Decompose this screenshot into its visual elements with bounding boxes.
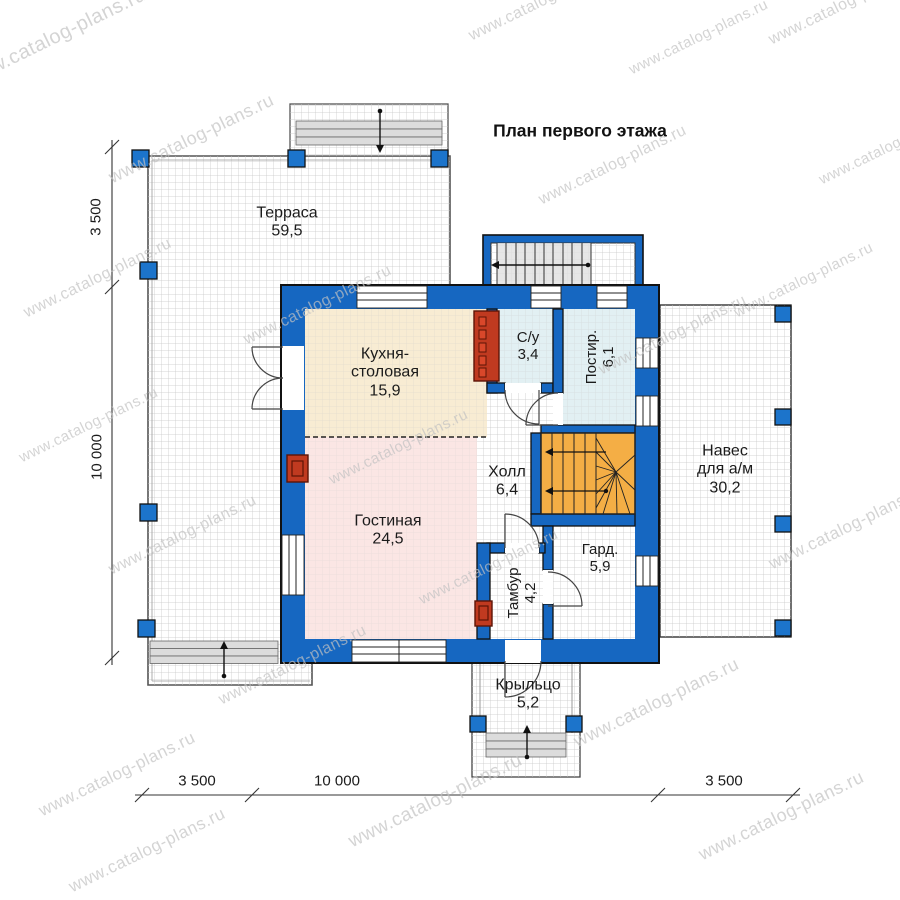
room-label-hall: Холл 6,4 (488, 464, 526, 501)
window (636, 556, 658, 586)
room-name: Кухня-столовая (337, 345, 433, 382)
plan-title: План первого этажа (493, 121, 667, 142)
room-name: Гостиная (354, 513, 421, 531)
dim-left-10000: 10 000 (89, 434, 106, 480)
room-label-terrace: Терраса 59,5 (256, 205, 317, 242)
room-name: С/у (517, 329, 540, 346)
room-label-living: Гостиная 24,5 (354, 513, 421, 550)
window (597, 286, 627, 308)
window (636, 338, 658, 368)
room-name: Холл (488, 464, 526, 482)
window (636, 396, 658, 426)
room-area: 6,4 (488, 482, 526, 500)
room-area: 24,5 (354, 531, 421, 549)
floor-plan-drawing (0, 0, 900, 900)
window (352, 640, 446, 662)
main-stairs (541, 433, 635, 514)
room-label-laundry: Постир. 6,1 (583, 330, 618, 384)
window (357, 286, 427, 308)
room-area: 59,5 (256, 223, 317, 241)
room-name: Тамбур (505, 568, 522, 619)
room-area: 5,2 (495, 695, 560, 713)
room-area: 6,1 (600, 330, 617, 384)
room-label-bathroom: С/у 3,4 (517, 329, 540, 364)
terrace-entry-steps (290, 104, 448, 156)
room-label-carport: Навес для а/м 30,2 (688, 442, 762, 497)
room-name: Постир. (583, 330, 600, 384)
room-area: 5,9 (582, 558, 619, 575)
room-area: 4,2 (522, 568, 539, 619)
dim-bottom-10000: 10 000 (314, 773, 360, 790)
dim-left-3500: 3 500 (88, 198, 105, 236)
room-label-kitchen: Кухня-столовая 15,9 (337, 345, 433, 400)
room-name: Терраса (256, 205, 317, 223)
dim-bottom-3500-left: 3 500 (178, 773, 216, 790)
dim-bottom-3500-right: 3 500 (705, 773, 743, 790)
room-label-wardrobe: Гард. 5,9 (582, 541, 619, 576)
window (531, 286, 561, 308)
exterior-stairs (483, 235, 643, 287)
room-area: 3,4 (517, 346, 540, 363)
room-label-vestibule: Тамбур 4,2 (505, 568, 540, 619)
room-name: Навес для а/м (688, 442, 762, 479)
floor-plan-page: План первого этажа Терраса 59,5 Кухня-ст… (0, 0, 900, 900)
room-name: Крыльцо (495, 677, 560, 695)
room-name: Гард. (582, 541, 619, 558)
window (282, 535, 304, 595)
room-label-porch: Крыльцо 5,2 (495, 677, 560, 714)
room-area: 15,9 (337, 382, 433, 400)
room-area: 30,2 (688, 479, 762, 497)
